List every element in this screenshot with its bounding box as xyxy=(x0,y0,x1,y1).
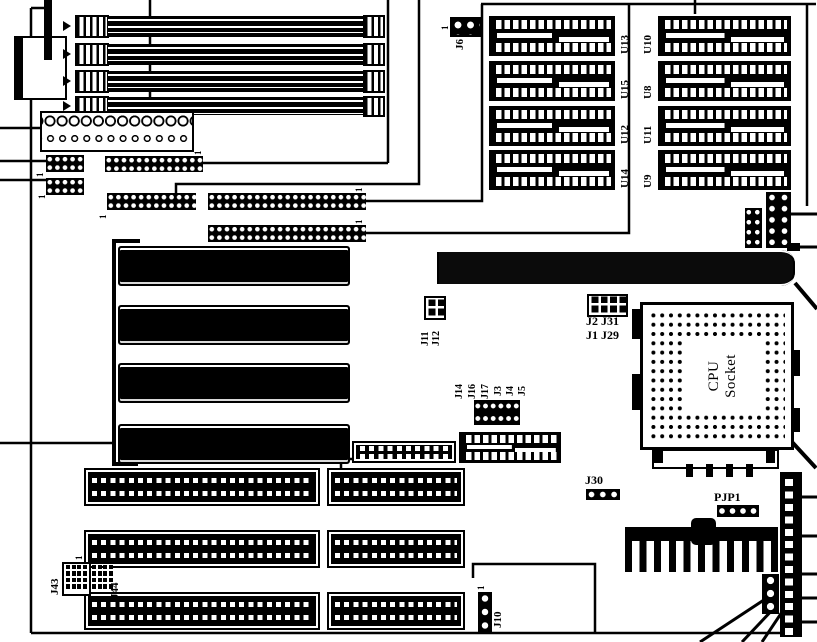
chip-label-u10: U10 xyxy=(643,35,654,54)
dram-chip-u14 xyxy=(489,150,615,190)
header-e xyxy=(105,156,203,172)
isa-slot-1-right xyxy=(327,468,465,506)
pin1-marker: 1 xyxy=(99,215,108,220)
motherboard-diagram: 1 1 1 1 1 1 1 J6 U13 U15 U12 U14 U10 U8 … xyxy=(0,0,817,642)
jumper-label-j17: J17 xyxy=(480,384,491,399)
cpu-socket-center: CPU Socket xyxy=(684,337,762,414)
chip-label-u11: U11 xyxy=(643,126,654,144)
simm-slot-2-left-cap xyxy=(75,43,109,66)
jumper-label-j10: J10 xyxy=(493,612,504,629)
jumper-j10 xyxy=(478,592,492,633)
jumper-label-j11: J11 xyxy=(420,332,431,346)
jumper-label-j16: J16 xyxy=(467,384,478,399)
memory-bar-3 xyxy=(118,363,350,403)
simm3-arrow-icon xyxy=(63,76,71,86)
heatsink-fins xyxy=(625,541,778,572)
socket-tab-left-2 xyxy=(632,374,640,410)
socket-bottom-bracket xyxy=(652,449,779,469)
jumper-label-j2-j31: J2 J31 xyxy=(586,315,619,327)
socket-tab-right-2 xyxy=(791,408,800,432)
jumper-label-pjp1: PJP1 xyxy=(714,491,741,503)
chip-label-u9: U9 xyxy=(643,175,654,188)
jumper-j43-pad xyxy=(66,565,76,576)
isa-slot-2-right xyxy=(327,530,465,568)
jumper-label-j43: J43 xyxy=(50,579,61,596)
simm-slot-4-right-cap xyxy=(363,96,385,117)
cpu-socket-label: CPU Socket xyxy=(706,354,740,398)
jumper-j6 xyxy=(450,17,482,37)
jumper-pjp1 xyxy=(717,505,759,517)
simm4-arrow-icon xyxy=(63,101,71,111)
pin1-marker: 1 xyxy=(194,151,203,156)
jumper-label-j4: J4 xyxy=(505,386,516,396)
simm-slot-1-right-cap xyxy=(363,15,385,38)
cpu-socket-label-line1: CPU xyxy=(706,354,723,398)
pin1-marker: 1 xyxy=(355,188,364,193)
pin1-marker: 1 xyxy=(36,173,45,178)
jumper-label-j3: J3 xyxy=(493,386,504,396)
cache-slot-bar xyxy=(437,250,795,286)
isa-slot-1-left xyxy=(84,468,320,506)
heatsink-clip xyxy=(691,518,716,545)
jumper-block-a xyxy=(745,208,762,248)
jumper-j44-pad xyxy=(92,578,102,589)
simm1-arrow-icon xyxy=(63,21,71,31)
socket-bottom-tooth-2 xyxy=(706,464,713,477)
simm2-arrow-icon xyxy=(63,49,71,59)
pin1-marker: 1 xyxy=(75,556,84,561)
jumper-j11-j12-block xyxy=(424,296,446,320)
jumper-j43-pad xyxy=(77,565,87,576)
right-connector-strip xyxy=(780,472,802,637)
dram-chip-u12 xyxy=(489,106,615,146)
jumper-j43-pad xyxy=(77,578,87,589)
dram-chip-u11 xyxy=(658,106,791,146)
jumper-label-j12: J12 xyxy=(431,331,442,346)
socket-bottom-tab-2 xyxy=(766,451,775,463)
jumper-label-j30: J30 xyxy=(585,474,603,486)
power-connector xyxy=(40,111,194,152)
dram-chip-u8 xyxy=(658,61,791,101)
simm-slot-1-left-cap xyxy=(75,15,109,38)
chip-label-u14: U14 xyxy=(620,169,631,188)
memory-bar-1 xyxy=(118,246,350,286)
chip-label-u8: U8 xyxy=(643,86,654,99)
header-j14-j5 xyxy=(474,400,520,425)
simm-slot-3-right-cap xyxy=(363,70,385,93)
keyboard-connector-lead xyxy=(44,0,52,60)
socket-bottom-tooth-3 xyxy=(726,464,733,477)
simm-slot-2 xyxy=(107,44,365,65)
header-d2 xyxy=(46,178,84,195)
jumper-label-j5: J5 xyxy=(517,386,528,396)
dram-chip-u15 xyxy=(489,61,615,101)
jumper-label-j44: J44 xyxy=(110,583,121,600)
dram-chip-u9 xyxy=(658,150,791,190)
keyboard-connector-box xyxy=(14,36,67,100)
pin1-marker: 1 xyxy=(441,26,450,31)
chip-label-u13: U13 xyxy=(620,35,631,54)
simm-slot-2-right-cap xyxy=(363,43,385,66)
left-edge-stub-lines xyxy=(0,128,114,443)
jumper-j6-label: J6 xyxy=(455,39,466,50)
header-f xyxy=(107,193,196,210)
simm-slot-3 xyxy=(107,71,365,92)
jumper-j30 xyxy=(586,489,620,500)
chip-label-u12: U12 xyxy=(620,125,631,144)
socket-bottom-tooth-1 xyxy=(686,464,693,477)
isa-slot-2-left xyxy=(84,530,320,568)
jumper-block-b xyxy=(766,192,791,248)
simm-slot-1 xyxy=(107,16,365,37)
pin1-marker: 1 xyxy=(477,586,486,591)
pin1-marker: 1 xyxy=(355,220,364,225)
pin1-marker: 1 xyxy=(38,195,47,200)
jumper-j44-pad xyxy=(103,565,113,576)
jumper-j44-pad xyxy=(92,565,102,576)
jumper-label-j14: J14 xyxy=(454,384,465,399)
jumper-label-j1-j29: J1 J29 xyxy=(586,329,619,341)
socket-tab-right-1 xyxy=(791,350,800,376)
header-g1 xyxy=(208,193,366,210)
socket-bottom-tooth-4 xyxy=(746,464,753,477)
chip-u4 xyxy=(459,432,561,463)
bottom-right-jumper xyxy=(762,574,779,614)
slot-bar-end-tab xyxy=(787,243,800,251)
socket-bottom-tab-1 xyxy=(654,451,663,463)
memory-bar-2 xyxy=(118,305,350,345)
isa-slot-3-right xyxy=(327,592,465,630)
slot-segment-r0 xyxy=(352,441,456,463)
jumper-j43-pad xyxy=(66,578,76,589)
dram-chip-u13 xyxy=(489,16,615,56)
dram-chip-u10 xyxy=(658,16,791,56)
memory-bar-4 xyxy=(118,424,350,464)
simm-slot-3-left-cap xyxy=(75,70,109,93)
chip-label-u15: U15 xyxy=(620,80,631,99)
header-g2 xyxy=(208,225,366,242)
cpu-socket-label-line2: Socket xyxy=(723,354,740,398)
socket-tab-left-1 xyxy=(632,309,640,339)
header-d1 xyxy=(46,155,84,172)
